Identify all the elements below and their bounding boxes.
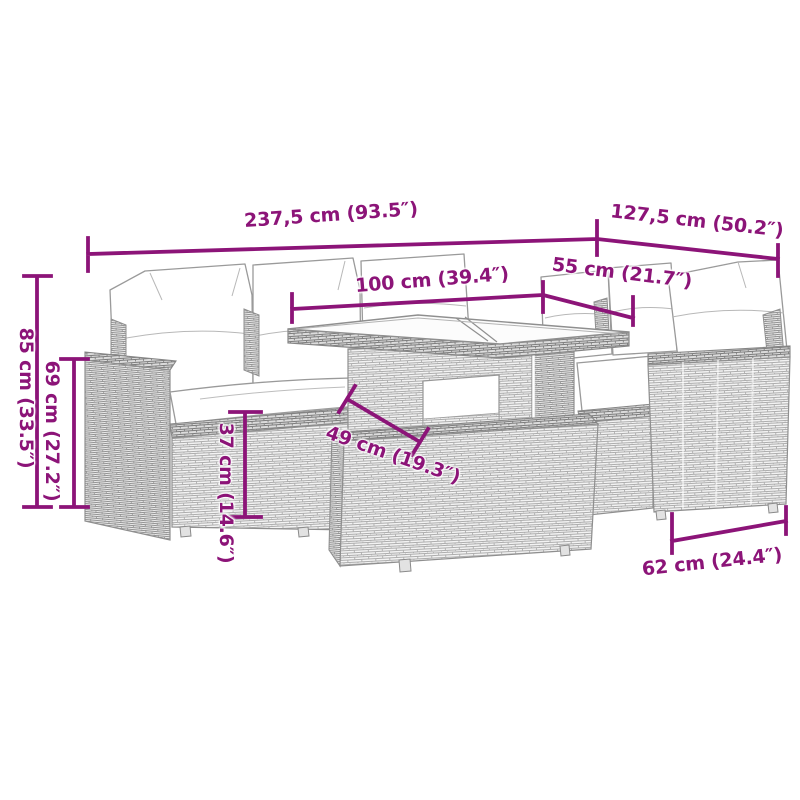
left-sofa-armrest — [85, 352, 176, 540]
dim-label-back-height: 85 cm (33.5″) — [15, 328, 37, 469]
seat-cushion-3 — [577, 356, 658, 411]
armrest-face — [85, 360, 170, 540]
back-post — [594, 298, 609, 334]
armrest-face — [648, 357, 790, 512]
dim-label-seat-height: 37 cm (14.6″) — [215, 423, 237, 564]
back-post — [244, 309, 259, 376]
furniture-line-art — [0, 0, 800, 800]
dim-label-arm-height: 69 cm (27.2″) — [41, 361, 63, 502]
dim-line-arm-height — [61, 359, 88, 507]
dimension-diagram: 237,5 cm (93.5″) 127,5 cm (50.2″) 100 cm… — [0, 0, 800, 800]
